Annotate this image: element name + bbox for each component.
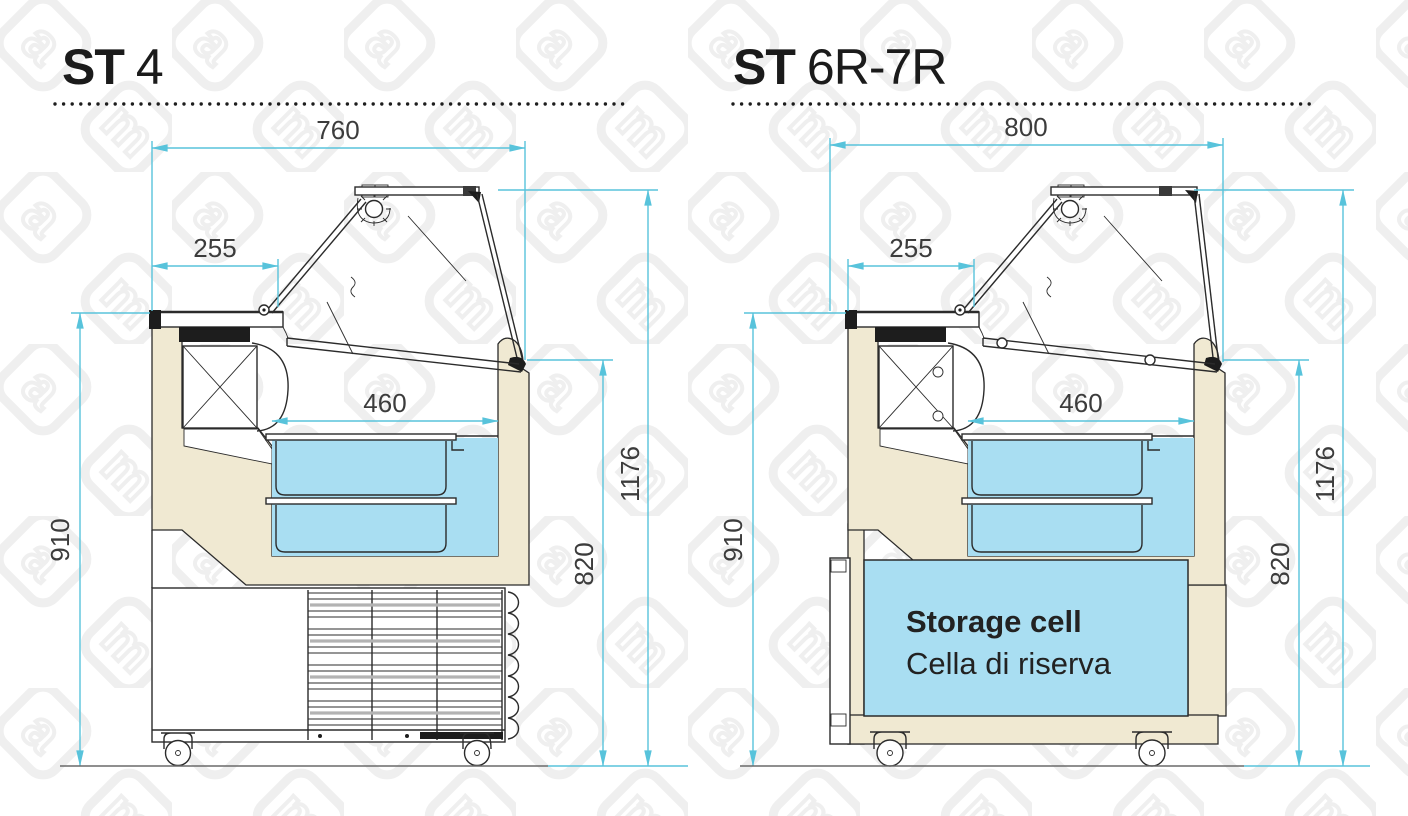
storage-cell-label-en: Storage cell [906,604,1082,639]
dim-label-front-height: 820 [569,542,599,585]
st6r7r-title-model: 6R-7R [807,39,946,95]
lamp-bar [355,187,479,195]
dim-label-top-width: 760 [316,115,359,145]
dim-label-front-height: 820 [1265,542,1295,585]
dim-label-rear-depth: 255 [193,233,236,263]
counter-edge-trim [149,310,161,329]
pan-lip-bottom [266,498,456,504]
dim-label-opening: 460 [1059,388,1102,418]
base-slab [848,715,1218,744]
dim-label-rear-depth: 255 [889,233,932,263]
dim-label-opening: 460 [363,388,406,418]
glass-hole [1145,355,1155,365]
dim-label-overall-height: 1176 [615,446,645,502]
st4-title-prefix: ST [62,39,124,95]
screw [933,411,943,421]
display-well [272,438,498,556]
lamp-bar [1051,187,1197,195]
storage-cell-label-it: Cella di riserva [906,646,1112,681]
screw [933,367,943,377]
st6r7r-title: ST6R-7R [733,39,946,95]
dim-label-overall-height: 1176 [1310,446,1340,502]
door-hinge [831,714,846,726]
dim-label-top-width: 800 [1004,112,1047,142]
bar-clamp [1159,186,1172,196]
lamp-icon [366,201,383,218]
st6r7r-title-prefix: ST [733,39,795,95]
door-hinge [831,560,846,572]
technical-drawing-canvas: a m ST4 [0,0,1408,816]
glass-hole [997,338,1007,348]
st4-title: ST4 [62,39,163,95]
dim-label-counter-height: 910 [718,518,748,561]
dim-label-counter-height: 910 [45,518,75,561]
pan-lip-top [266,434,456,440]
st4-title-model: 4 [136,39,163,95]
front-wall [1188,585,1226,716]
counter-recess [179,327,250,342]
